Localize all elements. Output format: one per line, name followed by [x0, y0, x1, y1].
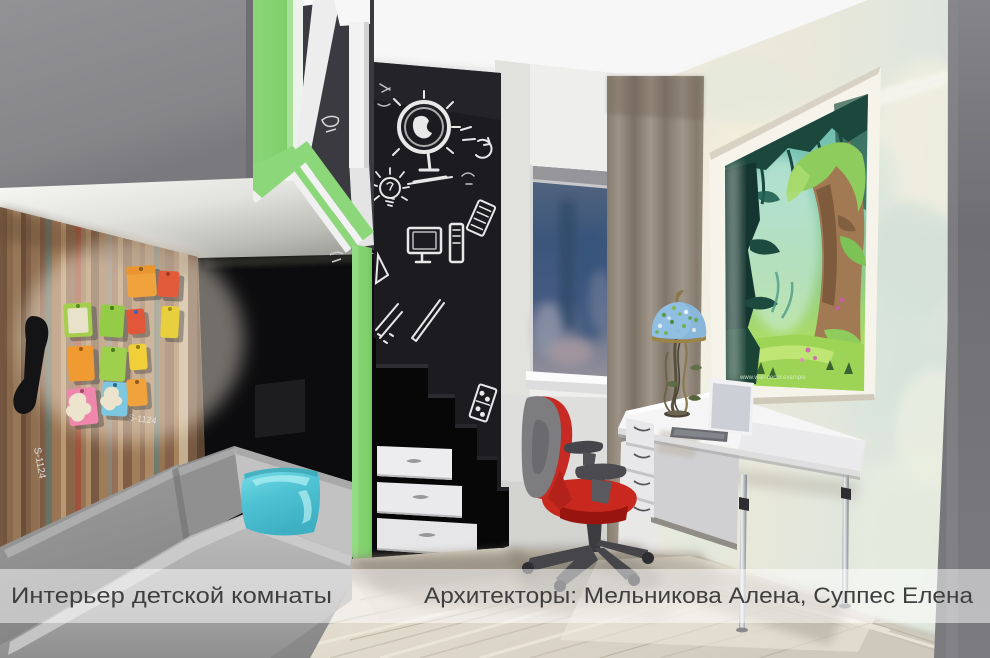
svg-text:Архитекторы: Мельникова Алена,: Архитекторы: Мельникова Алена, Суппес Ел… — [424, 583, 974, 608]
svg-text:Интерьер детской комнаты: Интерьер детской комнаты — [11, 583, 332, 608]
svg-text:www.wall-decor.example: www.wall-decor.example — [739, 375, 806, 381]
